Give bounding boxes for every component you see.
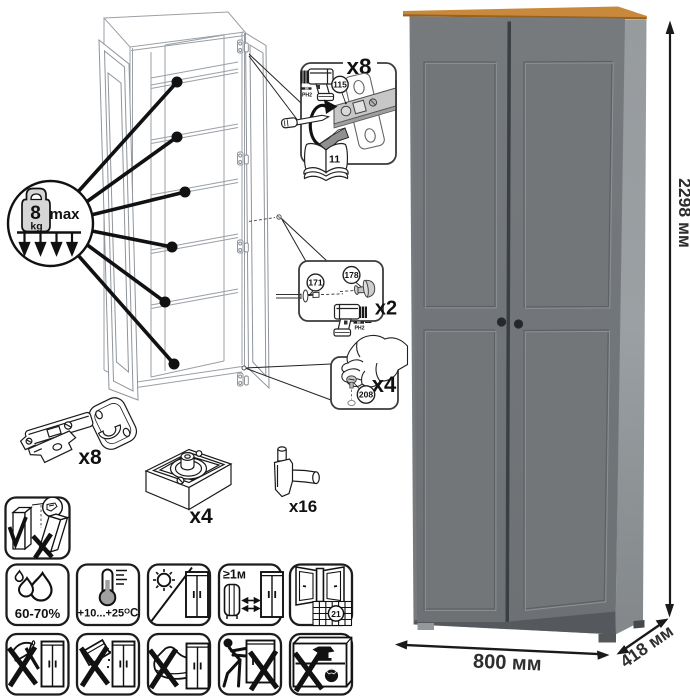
svg-text:60-70%: 60-70% [15, 606, 61, 621]
svg-text:max: max [49, 206, 80, 223]
svg-text:208: 208 [359, 390, 373, 400]
svg-text:x16: x16 [289, 497, 317, 516]
svg-text:x2: x2 [375, 298, 397, 320]
svg-text:115: 115 [333, 80, 347, 90]
svg-text:kg: kg [30, 221, 42, 233]
svg-text:PH2: PH2 [302, 93, 312, 99]
svg-text:+10...+25ОС: +10...+25ОС [78, 607, 139, 620]
svg-text:x4: x4 [372, 372, 397, 397]
svg-text:178: 178 [344, 270, 358, 280]
svg-text:x4: x4 [189, 505, 213, 528]
svg-text:x8: x8 [78, 446, 102, 469]
svg-text:800 мм: 800 мм [473, 650, 542, 675]
svg-text:171: 171 [308, 278, 322, 288]
svg-text:2298 мм: 2298 мм [675, 178, 690, 248]
svg-text:11: 11 [329, 154, 340, 166]
svg-text:≥1м: ≥1м [223, 568, 246, 582]
svg-text:21: 21 [331, 609, 341, 619]
svg-text:PH2: PH2 [354, 326, 364, 332]
